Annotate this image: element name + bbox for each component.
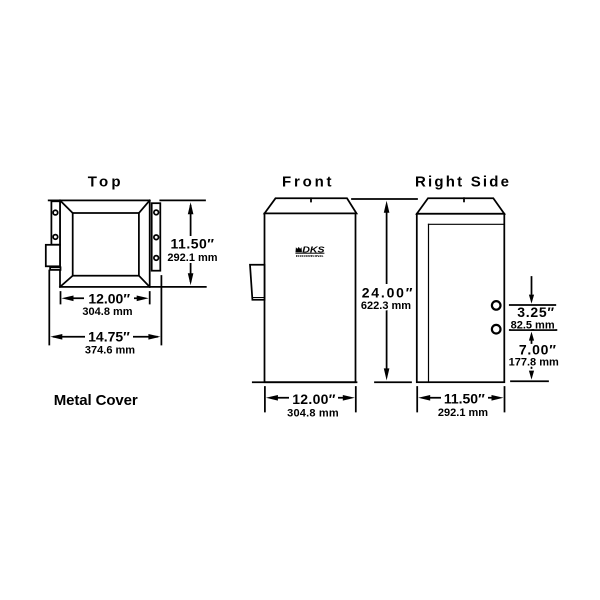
svg-text:7.00″: 7.00″ (519, 342, 557, 358)
svg-text:374.6 mm: 374.6 mm (85, 345, 135, 357)
svg-text:Top: Top (88, 174, 124, 191)
svg-text:304.8 mm: 304.8 mm (82, 306, 132, 318)
svg-text:Right Side: Right Side (415, 174, 511, 191)
svg-text:292.1 mm: 292.1 mm (167, 252, 217, 264)
svg-text:292.1 mm: 292.1 mm (438, 407, 488, 419)
svg-text:622.3 mm: 622.3 mm (361, 300, 411, 312)
svg-text:Metal Cover: Metal Cover (54, 392, 138, 409)
svg-text:11.50″: 11.50″ (171, 236, 215, 252)
svg-text:24.00″: 24.00″ (362, 285, 415, 301)
svg-text:3.25″: 3.25″ (517, 304, 554, 320)
svg-text:Front: Front (282, 174, 334, 191)
svg-text:12.00″: 12.00″ (88, 291, 130, 307)
svg-text:304.8 mm: 304.8 mm (287, 408, 339, 420)
svg-text:14.75″: 14.75″ (88, 328, 130, 344)
svg-text:12.00″: 12.00″ (292, 391, 336, 407)
svg-text:177.8 mm: 177.8 mm (509, 357, 559, 369)
svg-text:DOORKING: DOORKING (296, 254, 325, 258)
svg-text:11.50″: 11.50″ (444, 391, 485, 407)
